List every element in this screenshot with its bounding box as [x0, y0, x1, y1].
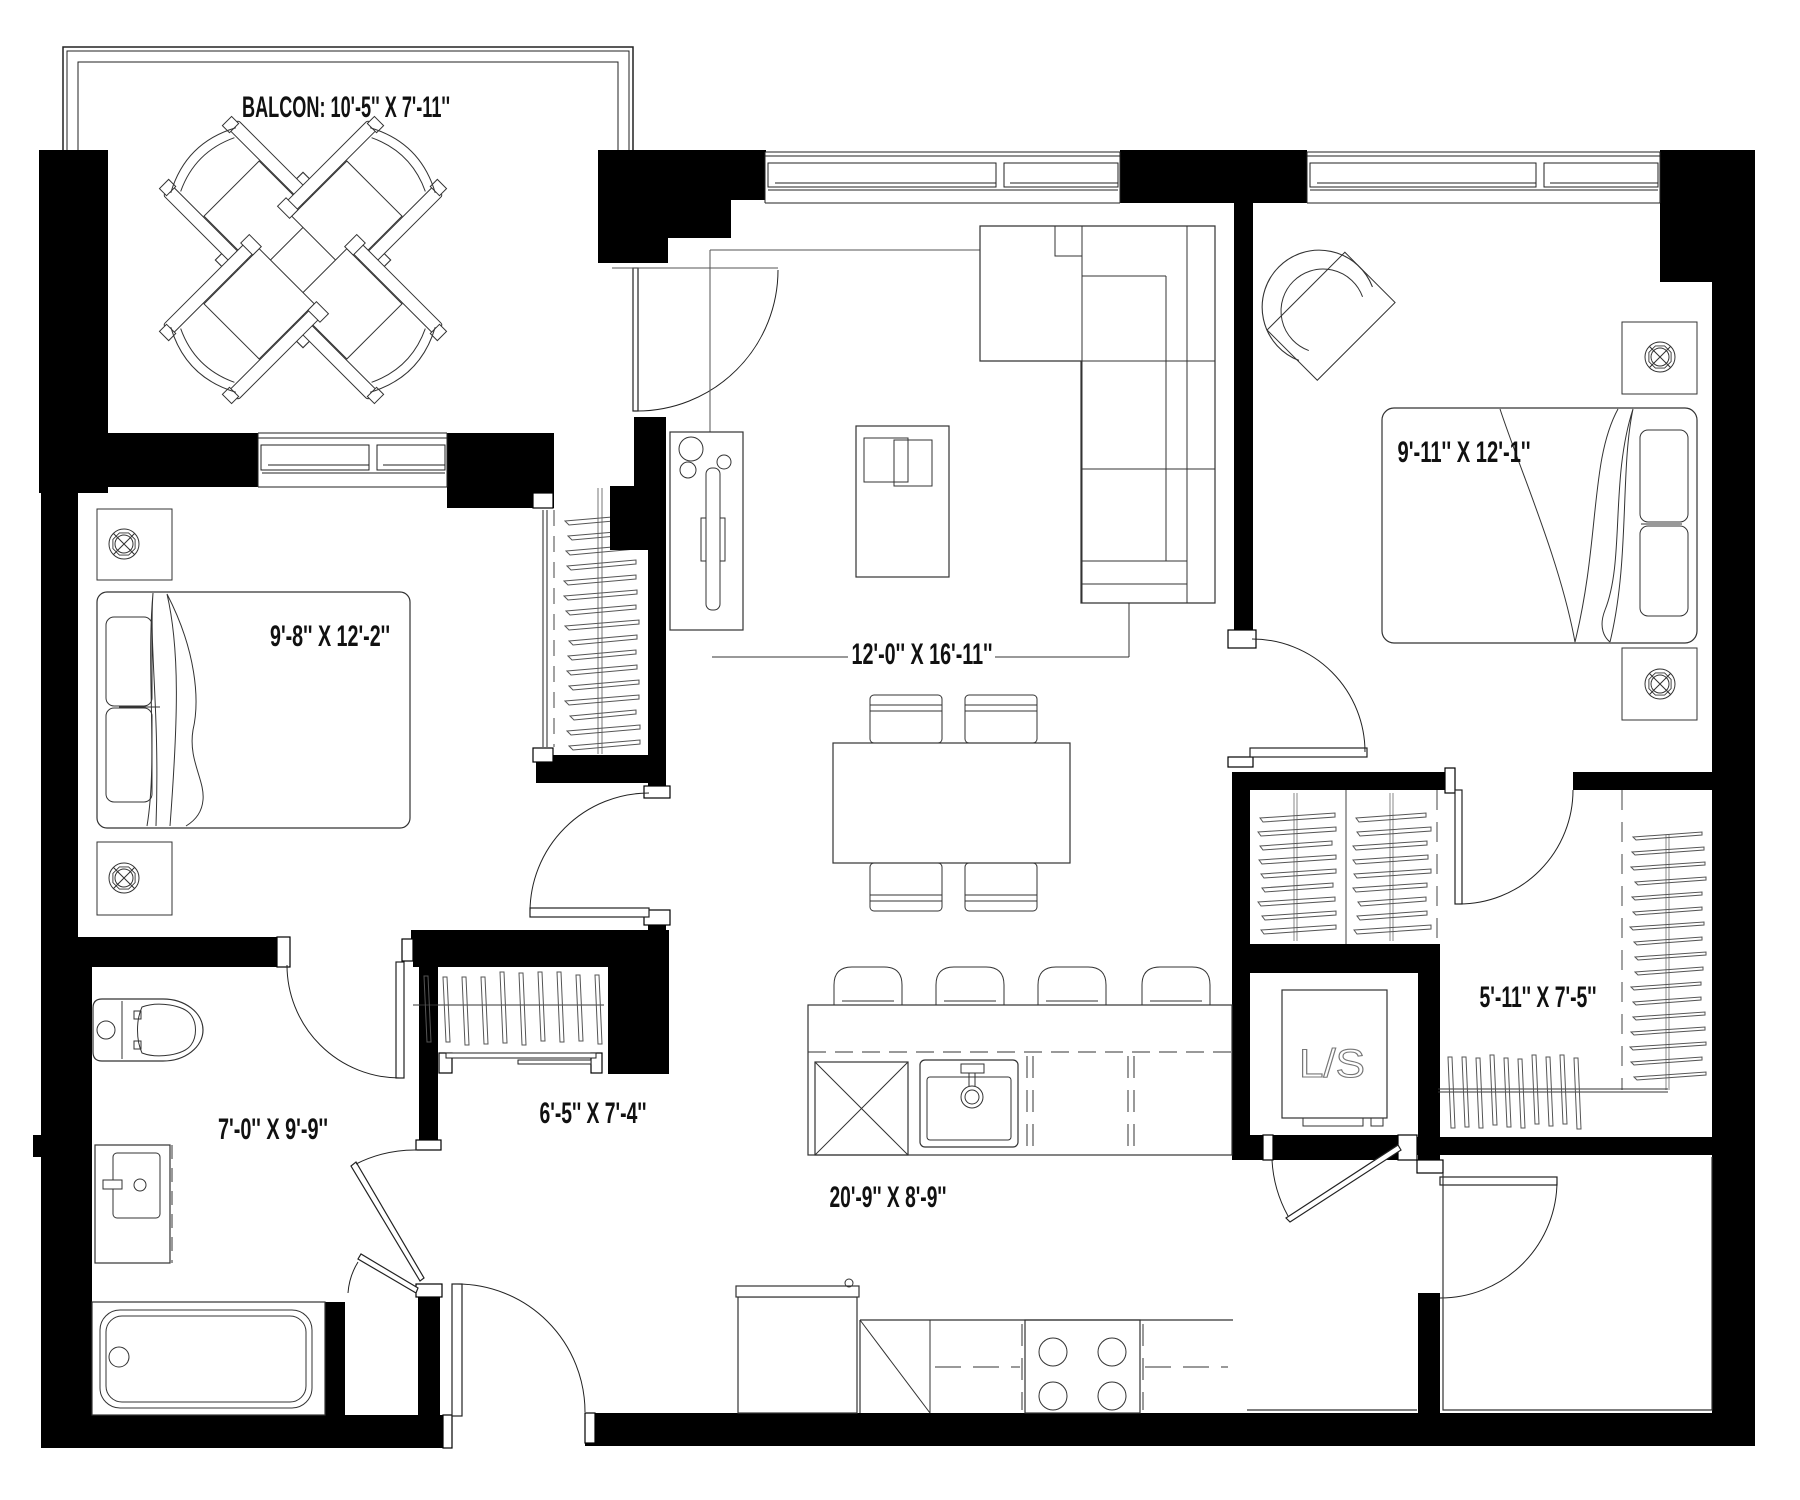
svg-text:9'-11'' X 12'-1'': 9'-11'' X 12'-1''	[1398, 436, 1531, 469]
svg-text:9'-8'' X 12'-2'': 9'-8'' X 12'-2''	[270, 620, 390, 653]
svg-text:20'-9'' X 8'-9'': 20'-9'' X 8'-9''	[830, 1181, 947, 1214]
svg-text:5'-11'' X 7'-5'': 5'-11'' X 7'-5''	[1480, 981, 1597, 1014]
svg-text:BALCON: 10'-5'' X 7'-11'': BALCON: 10'-5'' X 7'-11''	[242, 91, 450, 124]
svg-text:12'-0'' X 16'-11'': 12'-0'' X 16'-11''	[852, 638, 993, 671]
svg-text:7'-0'' X 9'-9'': 7'-0'' X 9'-9''	[218, 1113, 328, 1146]
svg-text:6'-5'' X 7'-4'': 6'-5'' X 7'-4''	[540, 1097, 647, 1130]
svg-text:L/S: L/S	[1299, 1042, 1365, 1086]
